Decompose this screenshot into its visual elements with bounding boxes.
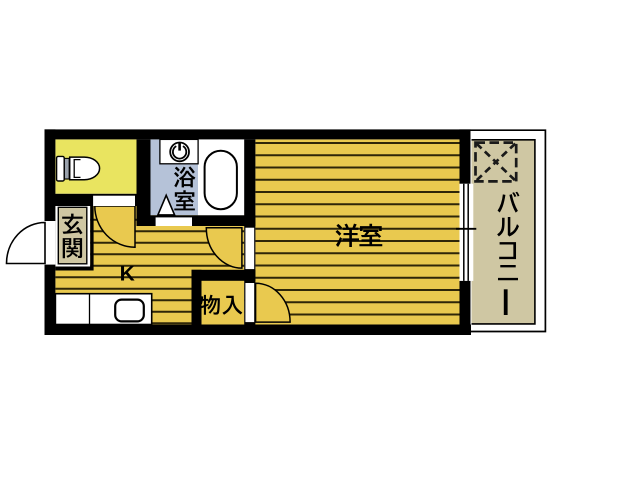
svg-text:K: K [120,263,135,286]
